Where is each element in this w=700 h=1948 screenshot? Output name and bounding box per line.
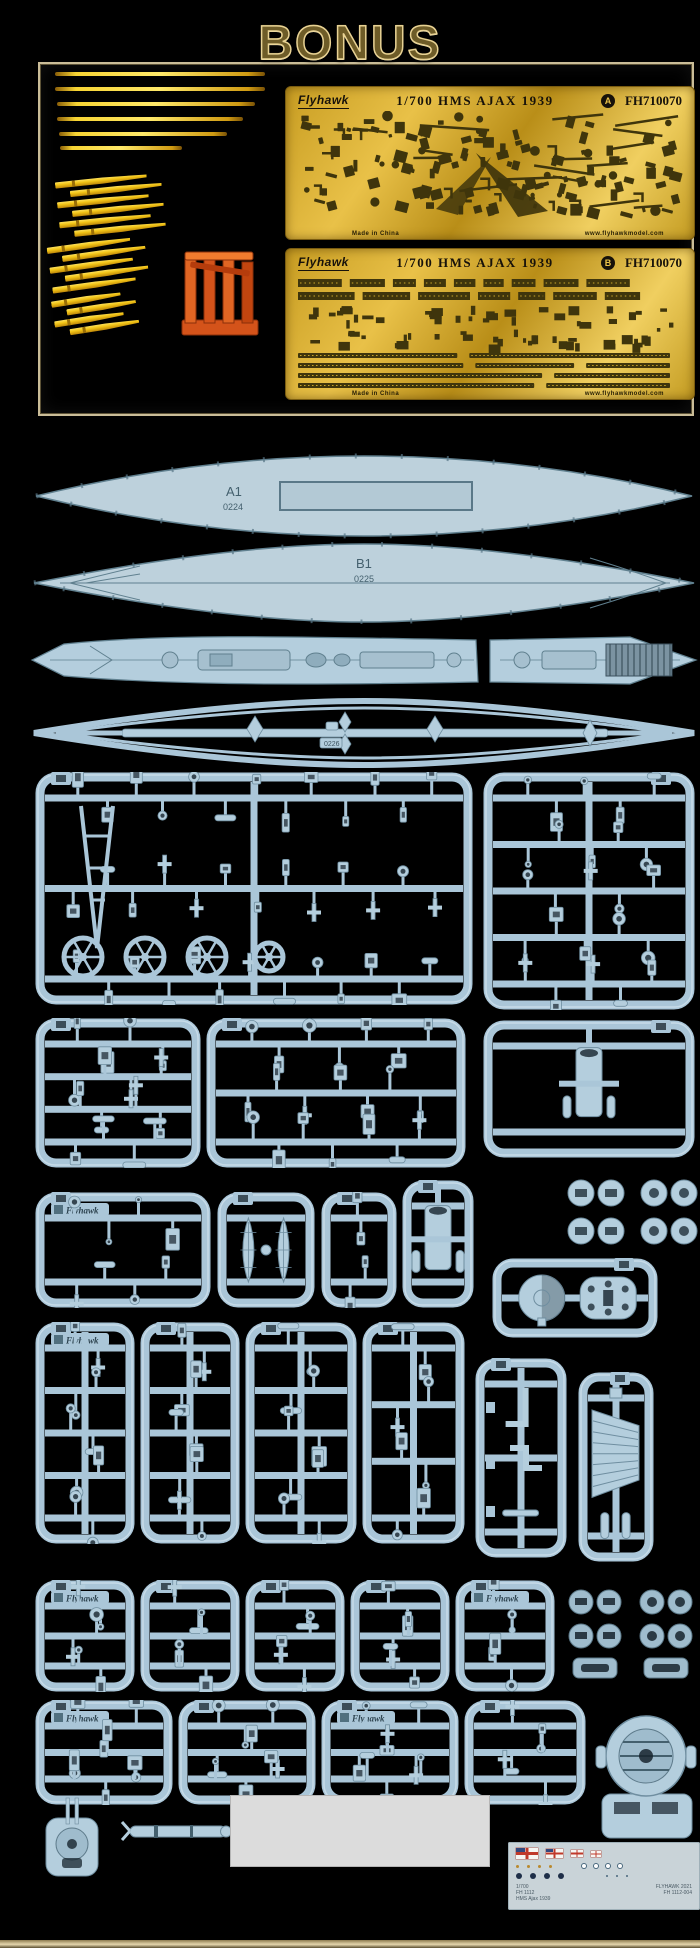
decal-roundel — [618, 1864, 622, 1868]
decal-sheet: 1/700 FH 1112 HMS Ajax 1939 FLYHAWK 2021… — [508, 1842, 700, 1910]
decal-roundel — [549, 1865, 552, 1868]
sprue: Flyhawk — [321, 1700, 459, 1805]
decal-roundel — [606, 1864, 610, 1868]
svg-text:Flyhawk: Flyhawk — [351, 1714, 385, 1724]
decal-dot — [530, 1873, 536, 1879]
decal-roundel — [516, 1865, 519, 1868]
decal-roundel — [582, 1864, 586, 1868]
turret-cluster — [636, 1175, 700, 1255]
turret-cluster — [565, 1586, 625, 1686]
decal-dot — [606, 1875, 608, 1877]
decal-ensign — [546, 1849, 563, 1858]
decal-dot — [558, 1873, 564, 1879]
turret-part — [26, 1796, 118, 1884]
sprue: Flyhawk — [455, 1580, 555, 1692]
page-bottom-edge — [0, 1940, 700, 1948]
sprue: Flyhawk — [35, 1192, 211, 1308]
sprue — [402, 1180, 474, 1308]
sprue — [206, 1018, 466, 1168]
sprue — [464, 1700, 586, 1805]
turret-cluster — [563, 1175, 627, 1255]
turret-cluster — [636, 1586, 696, 1686]
decal-ensign — [516, 1848, 538, 1859]
decal-ensign-row — [516, 1848, 692, 1859]
sprue — [578, 1372, 654, 1562]
white-card — [230, 1795, 490, 1867]
sprue — [178, 1700, 316, 1805]
sprue — [140, 1580, 240, 1692]
decal-dot — [516, 1873, 522, 1879]
decal-flag — [571, 1850, 583, 1857]
torpedo-part — [120, 1810, 240, 1852]
sprue — [35, 1018, 201, 1168]
svg-text:Flyhawk: Flyhawk — [65, 1594, 99, 1604]
decal-dot — [626, 1875, 628, 1877]
bonus-title: BONUS — [0, 20, 700, 68]
sprue — [475, 1358, 567, 1558]
decal-text-right: FLYHAWK 2021 FH 1112-004 — [656, 1884, 692, 1902]
sprue — [492, 1258, 658, 1338]
sprue — [483, 1020, 695, 1158]
sprue — [245, 1322, 357, 1544]
sprue — [35, 772, 473, 1005]
svg-text:Flyhawk: Flyhawk — [65, 1206, 99, 1216]
sprue: Flyhawk — [35, 1322, 135, 1544]
decal-roundel — [594, 1864, 598, 1868]
sprue — [217, 1192, 315, 1308]
decal-dot — [616, 1875, 618, 1877]
kit-contents-page: BONUS Flyhawk 1/700 HMS AJAX 1939 A FH71… — [0, 0, 700, 1948]
decal-flag — [591, 1851, 601, 1857]
svg-text:Flyhawk: Flyhawk — [65, 1714, 99, 1724]
sprue: Flyhawk — [35, 1700, 173, 1805]
sprue — [350, 1580, 450, 1692]
decal-roundel — [527, 1865, 530, 1868]
decal-dot — [544, 1873, 550, 1879]
sprue — [483, 772, 695, 1010]
sprue: Flyhawk — [35, 1580, 135, 1692]
sprue — [362, 1322, 465, 1544]
windlass-part — [590, 1698, 700, 1848]
sprue — [321, 1192, 397, 1308]
sprue — [245, 1580, 345, 1692]
decal-text-left: 1/700 FH 1112 HMS Ajax 1939 — [516, 1884, 550, 1902]
svg-text:Flyhawk: Flyhawk — [485, 1594, 519, 1604]
decal-dot-row — [516, 1873, 692, 1879]
sprue — [140, 1322, 240, 1544]
decal-roundel-row — [516, 1864, 692, 1868]
decal-roundel — [538, 1865, 541, 1868]
